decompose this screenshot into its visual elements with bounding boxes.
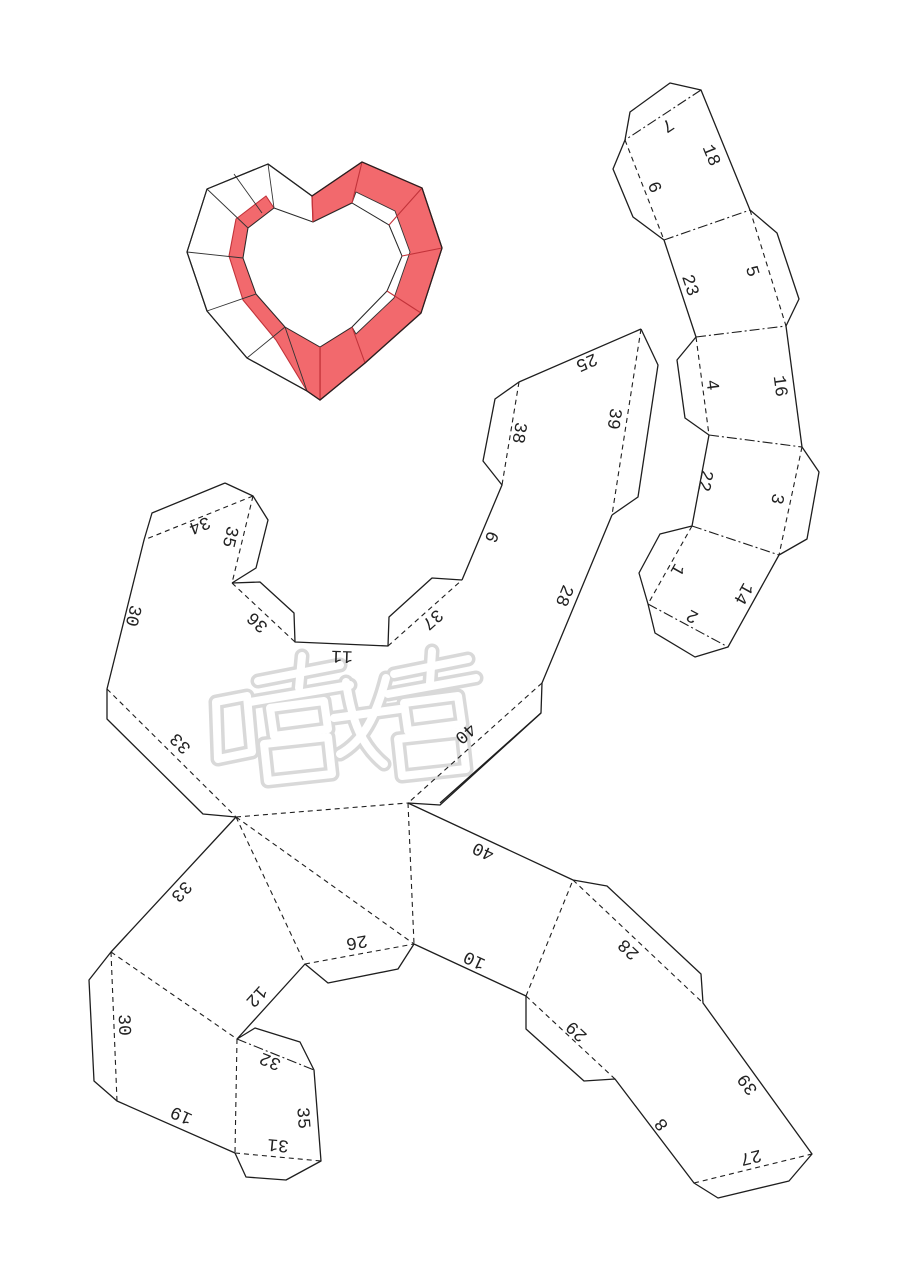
svg-text:30: 30: [113, 1014, 134, 1036]
svg-text:38: 38: [506, 420, 529, 445]
svg-text:22: 22: [692, 468, 716, 493]
svg-text:39: 39: [601, 406, 624, 430]
svg-text:31: 31: [267, 1133, 290, 1155]
svg-text:26: 26: [344, 929, 369, 953]
svg-text:16: 16: [768, 374, 791, 398]
svg-text:35: 35: [291, 1107, 313, 1130]
svg-text:11: 11: [331, 645, 353, 666]
